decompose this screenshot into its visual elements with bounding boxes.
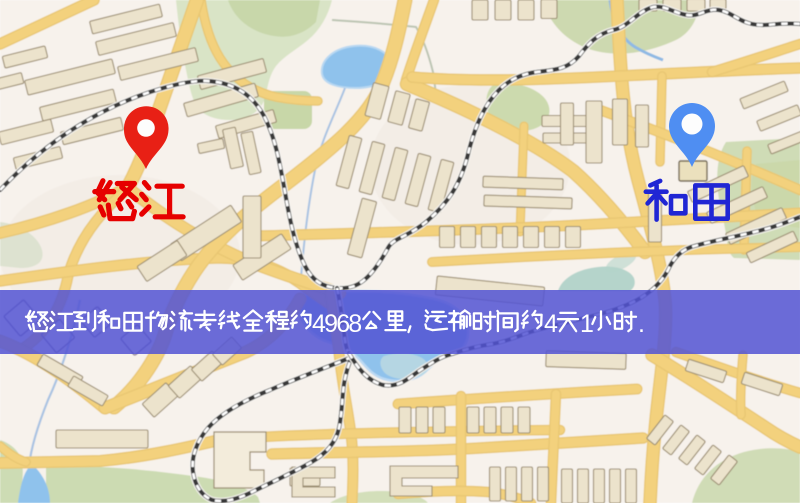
svg-text:4968: 4968 bbox=[312, 310, 361, 338]
svg-text:.: . bbox=[638, 310, 645, 338]
svg-text:4: 4 bbox=[544, 310, 558, 338]
